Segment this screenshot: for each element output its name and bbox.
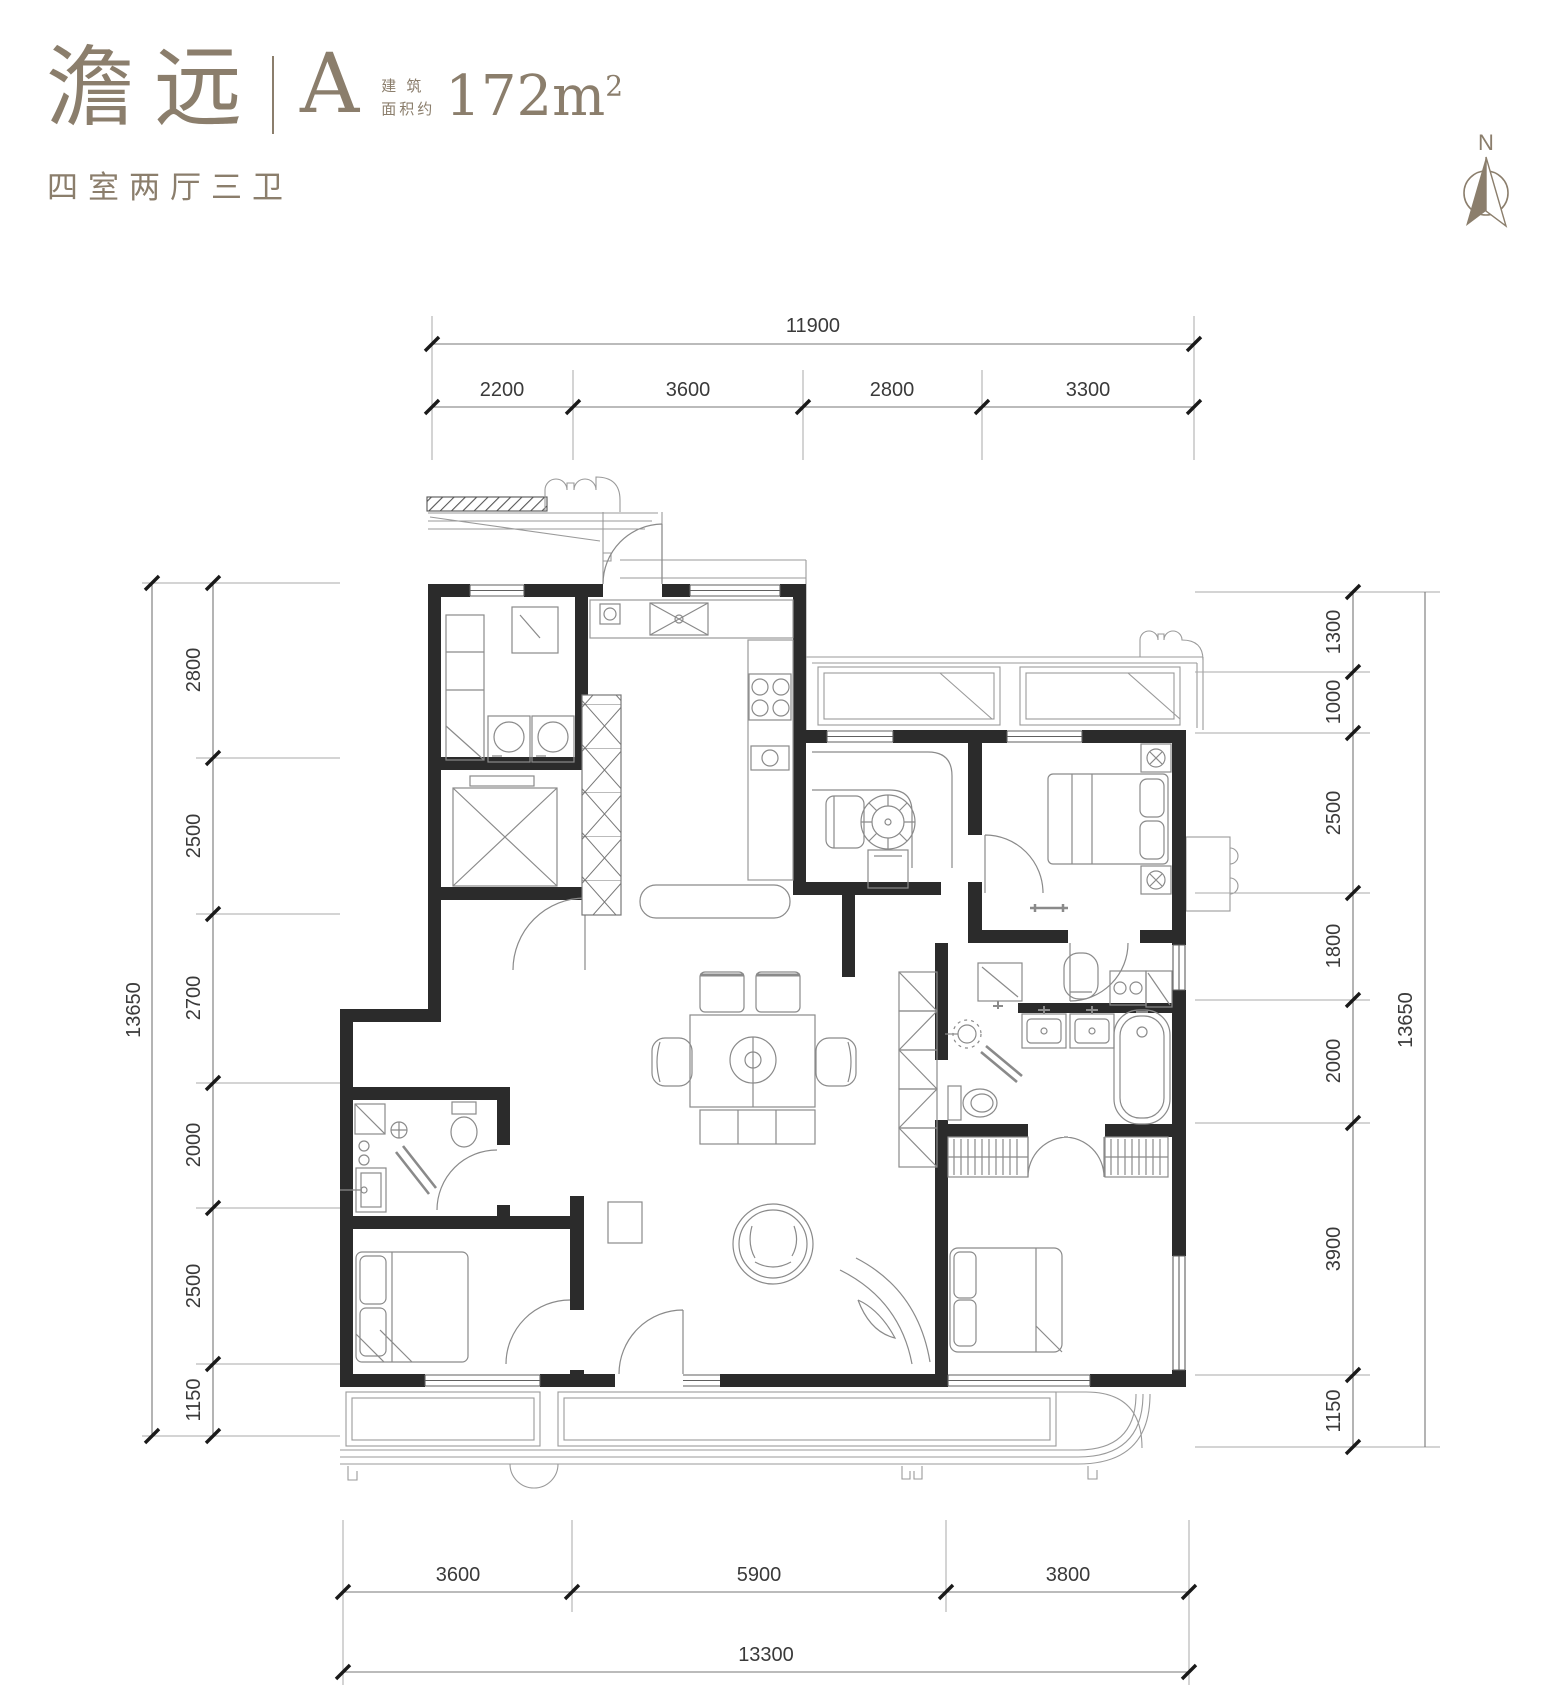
living-room <box>608 1202 930 1364</box>
dim-bottom-seg-1: 5900 <box>737 1564 782 1586</box>
dimension-labels: 11900 2200 3600 2800 3300 3600 5900 3800… <box>123 315 1417 1666</box>
dim-left-seg-5: 1150 <box>183 1378 205 1421</box>
master-double-door <box>1028 1137 1104 1177</box>
north-arrow-left-half <box>1466 157 1486 226</box>
closet-column <box>899 972 937 1167</box>
dim-top-seg-3: 3300 <box>1066 379 1111 401</box>
entry-canopy <box>545 477 620 512</box>
bath1-door <box>437 1150 497 1210</box>
study <box>812 752 952 888</box>
north-label: N <box>1478 130 1494 155</box>
corner-crenellation <box>1140 631 1203 660</box>
dim-right-total: 13650 <box>1395 992 1417 1048</box>
side-table <box>608 1202 642 1243</box>
bedroom3 <box>1030 744 1171 912</box>
bath2 <box>945 953 1172 1124</box>
exterior-details <box>340 477 1238 1488</box>
dim-top-seg-2: 2800 <box>870 379 915 401</box>
dim-right-seg-0: 1300 <box>1323 610 1345 655</box>
dim-bottom-total: 13300 <box>738 1644 794 1666</box>
curved-lounge <box>840 1258 930 1364</box>
dim-left-seg-3: 2000 <box>183 1123 205 1168</box>
fixtures <box>340 600 1172 1364</box>
kitchen-island <box>640 885 790 918</box>
dim-left-seg-2: 2700 <box>183 976 205 1021</box>
elevator <box>453 776 557 886</box>
dining-set <box>652 972 856 1144</box>
walls <box>340 584 1186 1387</box>
balcony-door <box>619 1310 683 1374</box>
dim-right-seg-2: 2500 <box>1323 791 1345 836</box>
dim-bottom-seg-0: 3600 <box>436 1564 481 1586</box>
bedroom3-door <box>985 835 1043 893</box>
dimension-extension-lines <box>142 316 1440 1685</box>
doors <box>437 524 1128 1374</box>
dim-bottom-seg-2: 3800 <box>1046 1564 1091 1586</box>
laundry-room <box>446 607 574 762</box>
dim-right-seg-5: 3900 <box>1323 1227 1345 1272</box>
tv <box>1030 904 1068 912</box>
dim-top-seg-0: 2200 <box>480 379 525 401</box>
bedroom2-door <box>506 1300 570 1364</box>
bath1 <box>340 1102 477 1212</box>
dim-left-seg-4: 2500 <box>183 1264 205 1309</box>
dimension-lines <box>152 344 1425 1672</box>
hatched-ledge <box>427 497 547 511</box>
dim-left-total: 13650 <box>123 982 145 1038</box>
bedroom2 <box>356 1252 468 1362</box>
north-arrow-right-half <box>1486 157 1506 226</box>
dim-top-seg-1: 3600 <box>666 379 711 401</box>
plan-drawing: N <box>0 0 1554 1694</box>
balcony-left <box>346 1392 540 1446</box>
floor-plan-page: 澹远 A 建 筑 面积约 172m2 四室两厅三卫 <box>0 0 1554 1694</box>
shaft <box>582 695 621 915</box>
dim-right-seg-4: 2000 <box>1323 1039 1345 1084</box>
dim-right-seg-1: 1000 <box>1323 680 1345 725</box>
lobby-door <box>513 898 585 970</box>
dim-top-total: 11900 <box>786 315 840 337</box>
entry-door <box>603 524 662 584</box>
wardrobes <box>948 1137 1168 1177</box>
dim-left-seg-0: 2800 <box>183 648 205 693</box>
north-arrow: N <box>1464 130 1508 226</box>
balcony-center <box>558 1392 1056 1446</box>
dim-right-seg-3: 1800 <box>1323 924 1345 969</box>
dim-right-seg-6: 1150 <box>1323 1389 1345 1432</box>
dim-left-seg-1: 2500 <box>183 814 205 859</box>
master-bedroom <box>950 1248 1062 1352</box>
